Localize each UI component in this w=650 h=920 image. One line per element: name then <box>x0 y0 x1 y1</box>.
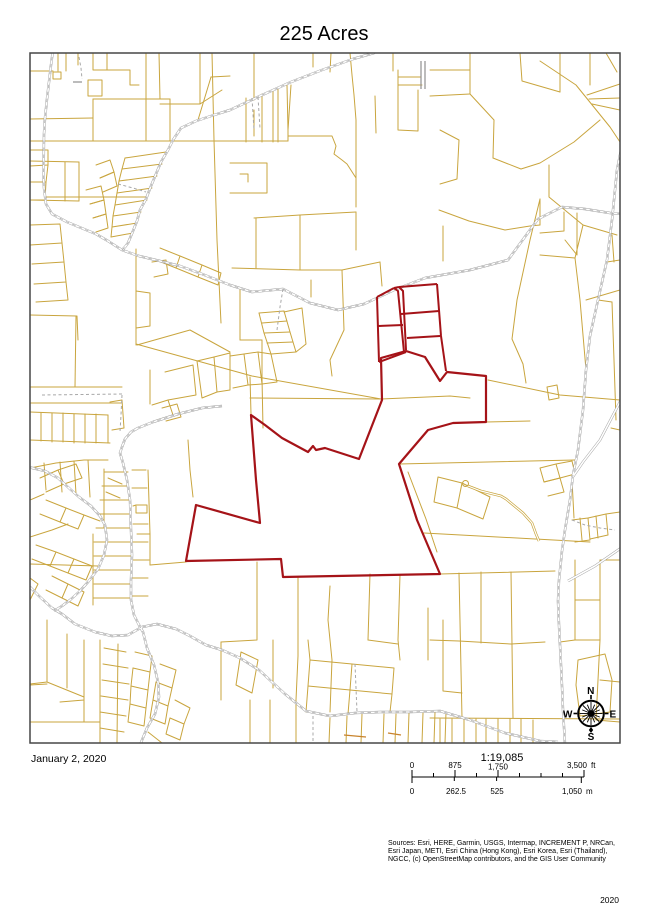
svg-text:2020: 2020 <box>600 895 619 905</box>
svg-text:January 2, 2020: January 2, 2020 <box>31 753 106 765</box>
svg-text:E: E <box>610 710 617 721</box>
svg-text:Sources: Esri, HERE, Garmin, U: Sources: Esri, HERE, Garmin, USGS, Inter… <box>388 840 615 847</box>
svg-text:1,750: 1,750 <box>488 763 509 772</box>
svg-text:262.5: 262.5 <box>446 787 467 796</box>
svg-text:ft: ft <box>591 761 596 770</box>
svg-text:1,050: 1,050 <box>562 787 583 796</box>
svg-text:W: W <box>563 710 573 721</box>
svg-text:875: 875 <box>448 761 462 770</box>
svg-text:525: 525 <box>490 787 504 796</box>
svg-text:Esri Japan, METI, Esri China (: Esri Japan, METI, Esri China (Hong Kong)… <box>388 848 607 855</box>
svg-text:3,500: 3,500 <box>567 761 588 770</box>
svg-text:S: S <box>588 732 595 743</box>
svg-text:NGCC, (c) OpenStreetMap contri: NGCC, (c) OpenStreetMap contributors, an… <box>388 856 606 863</box>
svg-text:0: 0 <box>410 787 415 796</box>
svg-text:0: 0 <box>410 761 415 770</box>
svg-text:m: m <box>586 787 593 796</box>
svg-text:225 Acres: 225 Acres <box>280 23 369 45</box>
svg-text:N: N <box>587 686 594 697</box>
